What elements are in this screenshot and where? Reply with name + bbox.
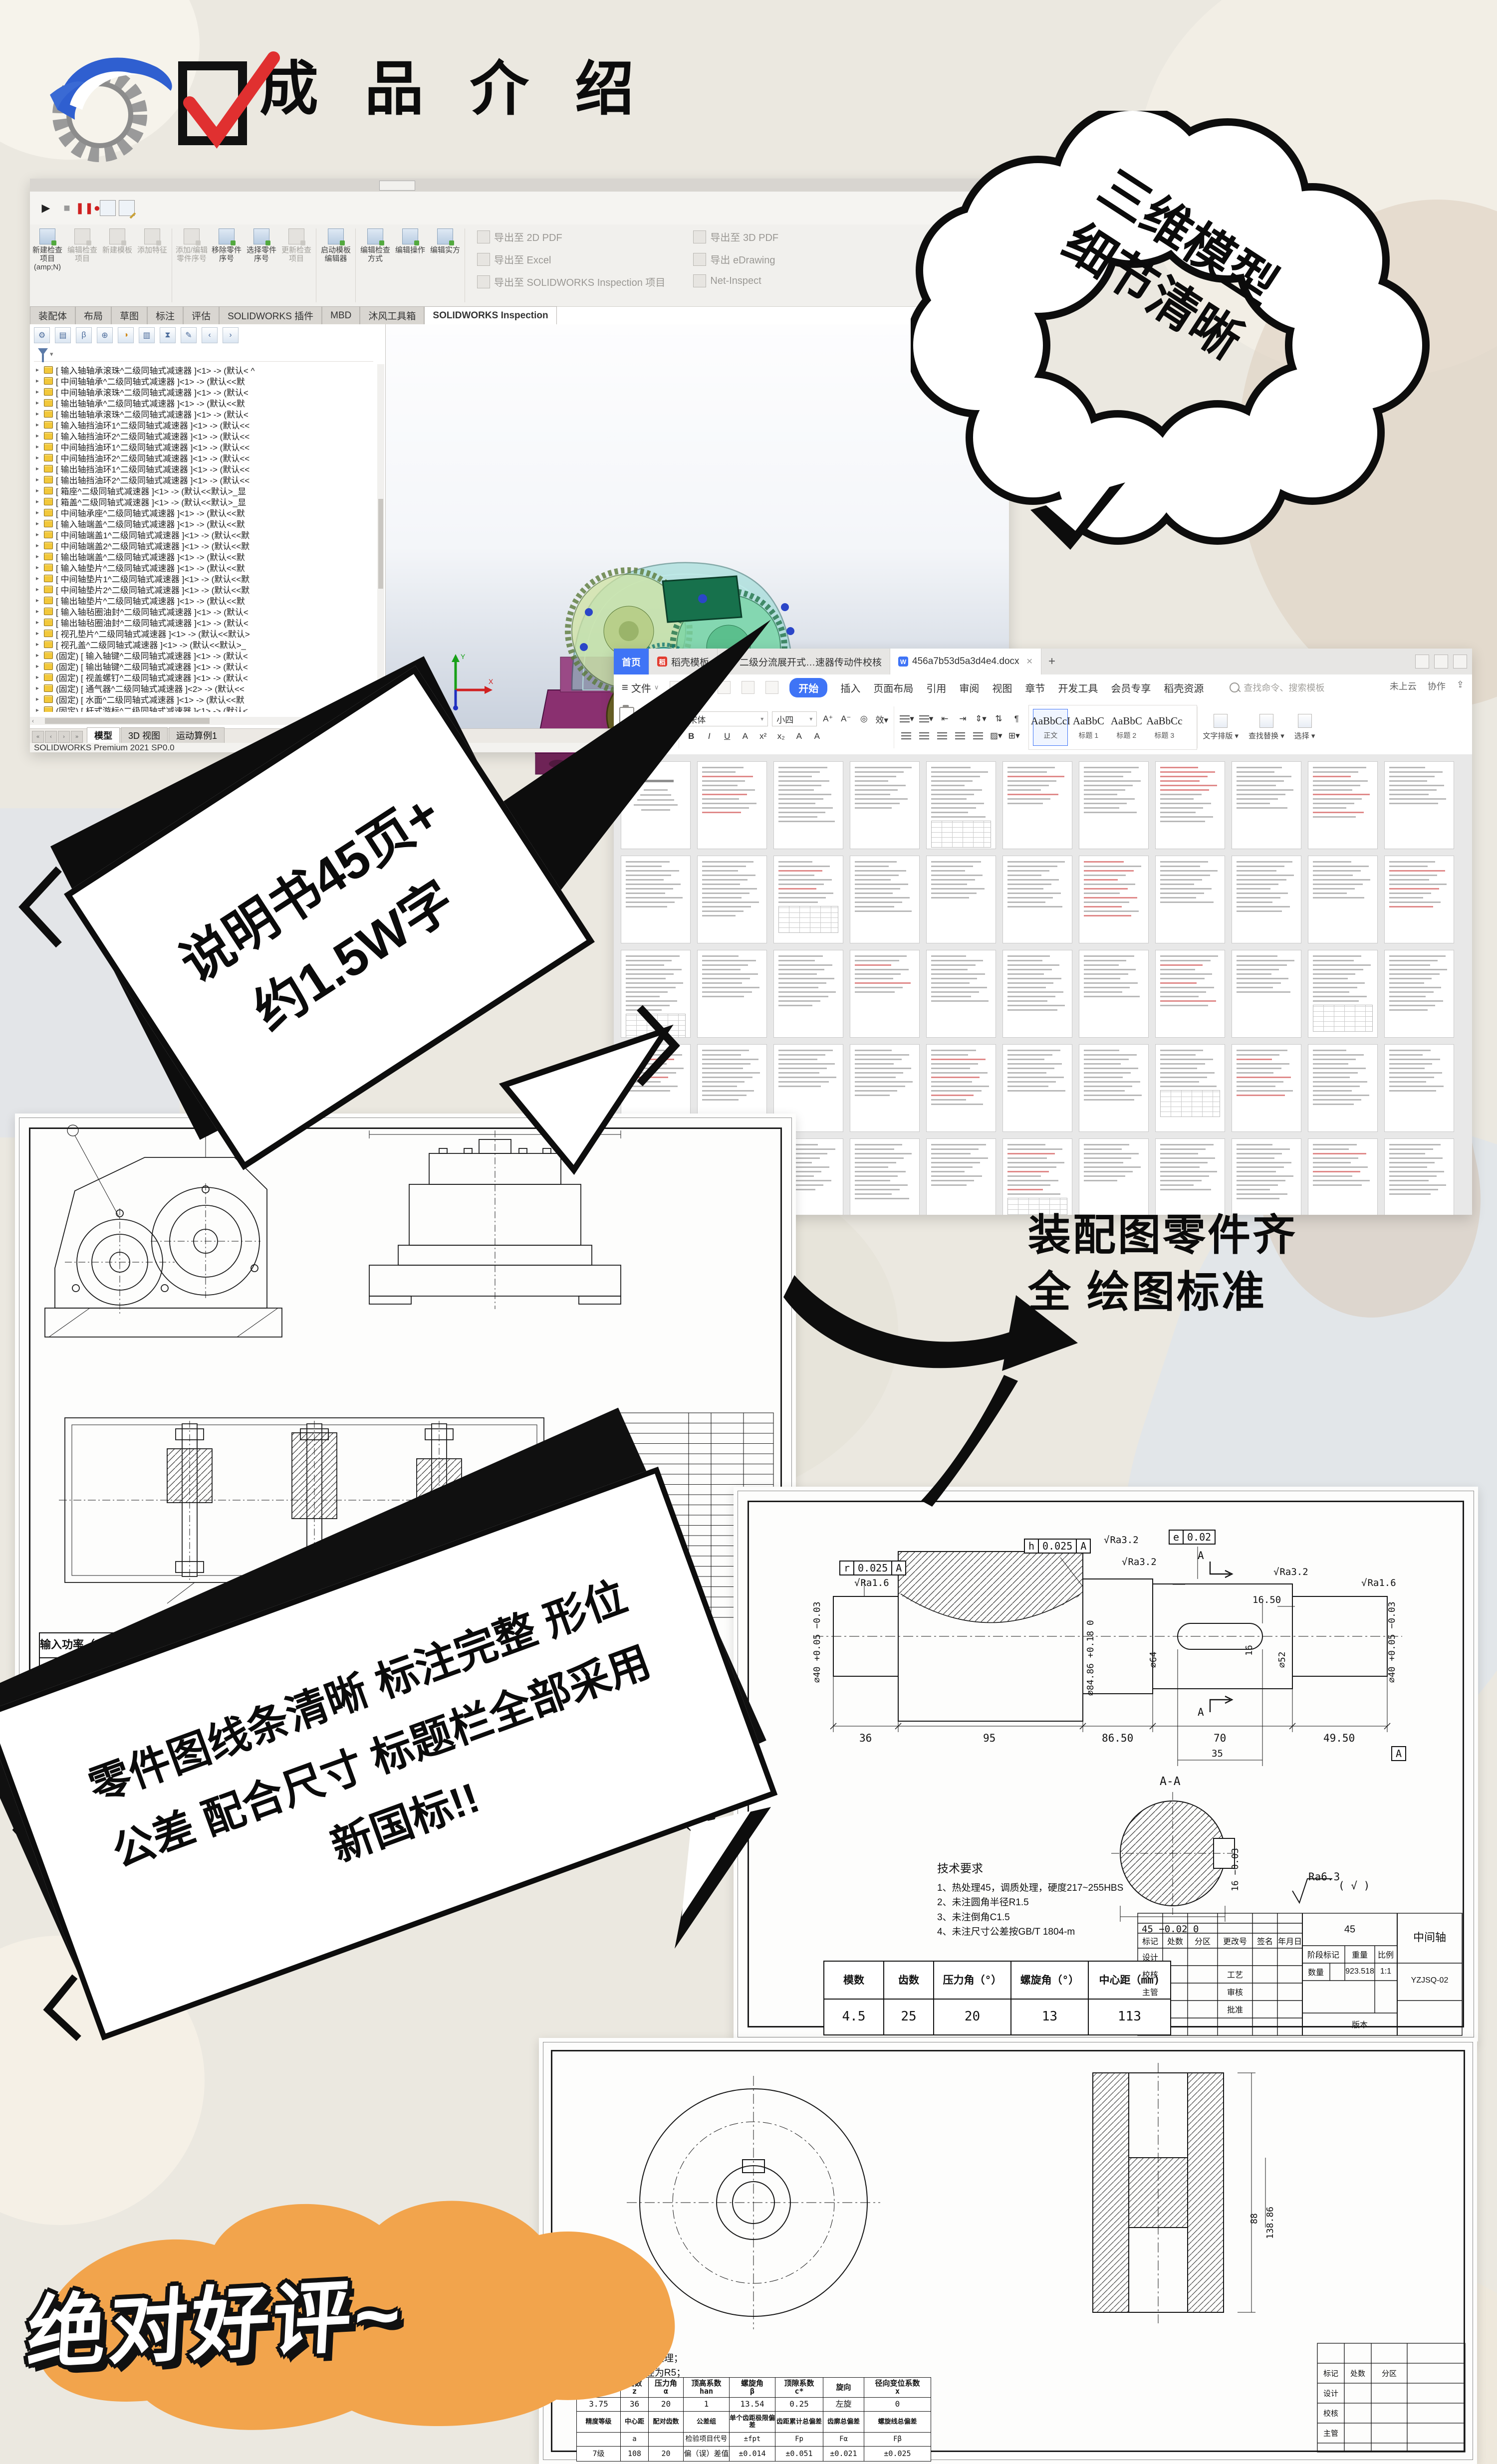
sw-tree-item-30[interactable]: ▸(固定) [ 水面^二级同轴式减速器 ]<1> -> (默认<<默 bbox=[30, 693, 374, 704]
sw-ribbon-button-3[interactable]: 添加特征 bbox=[135, 224, 170, 306]
print-icon[interactable] bbox=[718, 681, 731, 694]
wps-tool-0[interactable]: 文字排版 ▾ bbox=[1198, 714, 1244, 741]
wps-new-tab-button[interactable]: + bbox=[1041, 649, 1062, 674]
tree-expand-icon[interactable]: ▸ bbox=[36, 509, 41, 516]
tree-expand-icon[interactable]: ▸ bbox=[36, 498, 41, 505]
sw-tab-5[interactable]: SOLIDWORKS 插件 bbox=[219, 306, 322, 324]
format-button-5[interactable]: x₂ bbox=[774, 729, 788, 743]
tree-expand-icon[interactable]: ▸ bbox=[36, 663, 41, 670]
wps-page-thumbnail-55[interactable] bbox=[1384, 1138, 1454, 1215]
wps-page-thumbnail-11[interactable] bbox=[1384, 761, 1454, 849]
wps-page-thumbnail-7[interactable] bbox=[1079, 761, 1149, 849]
page-line bbox=[778, 785, 821, 786]
record-icon[interactable]: ❚❚● bbox=[79, 199, 97, 217]
sw-bottom-tab-2[interactable]: 运动算例1 bbox=[169, 727, 225, 743]
sw-tree-item-5[interactable]: ▸[ 输入轴挡油环1^二级同轴式减速器 ]<1> -> (默认<< bbox=[30, 419, 374, 430]
copy-button[interactable]: ⧉ 复制 bbox=[640, 722, 674, 733]
sort-button[interactable]: ⇅ bbox=[992, 712, 1005, 726]
sw-ribbon-button-5[interactable]: 移除零件序号 bbox=[209, 224, 244, 306]
format-button-6[interactable]: A bbox=[792, 729, 806, 743]
part-icon bbox=[44, 487, 53, 494]
page-line bbox=[778, 1063, 835, 1065]
play-icon[interactable]: ▶ bbox=[37, 199, 55, 217]
stop-icon[interactable]: ■ bbox=[58, 199, 76, 217]
sw-export-button-3[interactable]: 导出至 3D PDF bbox=[693, 229, 778, 244]
page-line bbox=[1084, 1171, 1133, 1172]
sw-tree-tab-icons: ⚙ ▤ β ⊕ ◑ ▥ ⧗ ✎ ‹ › bbox=[34, 327, 239, 343]
wps-page-thumbnail-12[interactable] bbox=[621, 856, 691, 943]
wps-page-thumbnail-43[interactable] bbox=[1308, 1044, 1378, 1132]
border-button[interactable]: ⊞▾ bbox=[1007, 729, 1021, 743]
page-line bbox=[855, 1148, 894, 1150]
sw-tab-4[interactable]: 评估 bbox=[183, 306, 219, 324]
wps-page-thumbnail-33[interactable] bbox=[1384, 950, 1454, 1038]
edit-macro-icon[interactable] bbox=[119, 200, 135, 216]
sw-tree-item-11[interactable]: ▸[ 箱座^二级同轴式减速器 ]<1> -> (默认<<默认>_显 bbox=[30, 485, 374, 496]
tree-expand-icon[interactable]: ▸ bbox=[36, 531, 41, 538]
page-line bbox=[931, 1171, 965, 1172]
wps-window-tab-2[interactable]: P二级分流展开式…速器传动件校核 bbox=[718, 649, 890, 674]
page-line bbox=[1160, 794, 1202, 795]
wps-page-thumbnail-40[interactable] bbox=[1079, 1044, 1149, 1132]
wps-menu-9[interactable]: 稻壳资源 bbox=[1164, 680, 1204, 695]
sw-tree-item-14[interactable]: ▸[ 输入轴端盖^二级同轴式减速器 ]<1> -> (默认<<默 bbox=[30, 518, 374, 529]
sw-tree-item-6[interactable]: ▸[ 输入轴挡油环2^二级同轴式减速器 ]<1> -> (默认<< bbox=[30, 430, 374, 441]
wps-page-thumbnail-1[interactable] bbox=[621, 761, 691, 849]
wps-style-chip-2[interactable]: AaBbC标题 2 bbox=[1109, 709, 1144, 746]
page-line bbox=[1160, 1068, 1197, 1069]
cloud-status[interactable]: 未上云 bbox=[1390, 679, 1417, 692]
show-marks-button[interactable]: ¶ bbox=[1009, 712, 1023, 726]
page-line bbox=[1007, 1153, 1055, 1154]
sw-tree-item-19[interactable]: ▸[ 中间轴垫片1^二级同轴式减速器 ]<1> -> (默认<<默 bbox=[30, 573, 374, 584]
sw-ribbon-button-label: 编辑检查项目 bbox=[65, 246, 100, 263]
featuremanager-icon[interactable]: ⚙ bbox=[34, 327, 50, 343]
sw-tree-item-0[interactable]: ▸[ 输入轴轴承滚珠^二级同轴式减速器 ]<1> -> (默认< ^ bbox=[30, 364, 374, 375]
sw-tree-item-26[interactable]: ▸(固定) [ 输入轴键^二级同轴式减速器 ]<1> -> (默认< bbox=[30, 650, 374, 661]
page-line bbox=[855, 1144, 902, 1145]
tree-expand-icon[interactable]: ▸ bbox=[36, 630, 41, 637]
tree-expand-icon[interactable]: ▸ bbox=[36, 597, 41, 604]
sw-tree-item-28[interactable]: ▸(固定) [ 视盖螺钉^二级同轴式减速器 ]<1> -> (默认< bbox=[30, 672, 374, 682]
wps-page-thumbnail-5[interactable] bbox=[926, 761, 996, 849]
wps-tool-2[interactable]: 选择 ▾ bbox=[1289, 714, 1320, 741]
wps-window-tab-1[interactable]: 稻稻壳模板 bbox=[649, 649, 718, 674]
tree-expand-icon[interactable]: ▸ bbox=[36, 608, 41, 615]
tree-expand-icon[interactable]: ▸ bbox=[36, 586, 41, 593]
format-button-2[interactable]: U bbox=[720, 729, 734, 743]
page-line bbox=[1237, 798, 1278, 800]
wps-style-chip-0[interactable]: AaBbCcI正文 bbox=[1033, 709, 1068, 746]
wps-menu-7[interactable]: 开发工具 bbox=[1058, 680, 1098, 695]
sw-tab-0[interactable]: 装配体 bbox=[30, 306, 75, 324]
sw-ribbon-button-0[interactable]: 新建检查项目 (amp;N) bbox=[30, 224, 65, 306]
page-line bbox=[1237, 1144, 1272, 1145]
page-line bbox=[855, 789, 898, 791]
page-line bbox=[626, 1068, 684, 1069]
sw-tree-item-18[interactable]: ▸[ 输入轴垫片^二级同轴式减速器 ]<1> -> (默认<<默 bbox=[30, 562, 374, 573]
sw-tree-item-24[interactable]: ▸[ 视孔垫片^二级同轴式减速器 ]<1> -> (默认<<默认> bbox=[30, 628, 374, 639]
collab-button[interactable]: 协作 bbox=[1428, 679, 1446, 692]
tools-icon[interactable]: ✎ bbox=[181, 327, 197, 343]
sw-tab-6[interactable]: MBD bbox=[322, 306, 360, 324]
sw-tab-8[interactable]: SOLIDWORKS Inspection bbox=[424, 306, 556, 324]
distribute-button[interactable] bbox=[971, 729, 985, 743]
page-line bbox=[1389, 1144, 1441, 1145]
sw-tab-3[interactable]: 标注 bbox=[147, 306, 183, 324]
part-icon bbox=[44, 498, 53, 505]
sw-export-button-4[interactable]: 导出 eDrawing bbox=[693, 252, 778, 266]
sw-tree-item-2[interactable]: ▸[ 中间轴轴承滚珠^二级同轴式减速器 ]<1> -> (默认< bbox=[30, 386, 374, 397]
text-effect-button[interactable]: 效▾ bbox=[875, 712, 889, 726]
new-macro-icon[interactable] bbox=[100, 200, 116, 216]
sw-export-button-2[interactable]: 导出至 SOLIDWORKS Inspection 项目 bbox=[477, 274, 665, 289]
tree-expand-icon[interactable]: ▸ bbox=[36, 575, 41, 582]
page-line bbox=[1160, 776, 1208, 777]
wps-window-controls[interactable] bbox=[1415, 655, 1467, 669]
page-line bbox=[855, 1171, 906, 1172]
wps-page-thumbnail-54[interactable] bbox=[1308, 1138, 1378, 1215]
sw-tree-filter[interactable]: ▾ bbox=[34, 346, 373, 362]
shading-button[interactable]: ▨▾ bbox=[989, 729, 1003, 743]
display-icon[interactable]: ◑ bbox=[118, 327, 134, 343]
page-line bbox=[1237, 1068, 1281, 1069]
style-sample: AaBbCc bbox=[1146, 715, 1182, 727]
scroll-right-icon[interactable]: › bbox=[223, 327, 239, 343]
wps-page-thumbnail-44[interactable] bbox=[1384, 1044, 1454, 1132]
page-line bbox=[702, 897, 742, 898]
tree-expand-icon[interactable]: ▸ bbox=[36, 684, 41, 691]
wps-menu-8[interactable]: 会员专享 bbox=[1111, 680, 1151, 695]
sw-ribbon-button-11[interactable]: 编辑实方 bbox=[428, 224, 463, 306]
sw-tree-item-16[interactable]: ▸[ 中间轴端盖2^二级同轴式减速器 ]<1> -> (默认<<默 bbox=[30, 540, 374, 551]
wps-window-tab-3[interactable]: W456a7b53d5a3d4e4.docx✕ bbox=[890, 649, 1041, 674]
export-icon[interactable] bbox=[694, 681, 707, 694]
tree-expand-icon[interactable]: ▸ bbox=[36, 454, 41, 461]
gear-cell-2-6: 齿廓总偏差 bbox=[823, 2412, 864, 2433]
sw-export-button-5[interactable]: Net-Inspect bbox=[693, 274, 778, 287]
page-line bbox=[1084, 910, 1139, 912]
wps-page-thumbnail-28[interactable] bbox=[1002, 950, 1072, 1038]
wps-page-thumbnail-26[interactable] bbox=[850, 950, 920, 1038]
page-line bbox=[626, 906, 667, 907]
shaft-tech-line-3: 3、未注倒角C1.5 bbox=[937, 1910, 1123, 1925]
wps-page-thumbnail-41[interactable] bbox=[1155, 1044, 1225, 1132]
sw-ribbon-button-8[interactable]: 启动模板编辑器 bbox=[318, 224, 353, 306]
wps-menu-0[interactable]: 开始 bbox=[789, 678, 827, 697]
page-line bbox=[626, 978, 666, 979]
sw-ribbon-button-10[interactable]: 编辑操作 bbox=[393, 224, 428, 306]
wps-page-thumbnail-18[interactable] bbox=[1079, 856, 1149, 943]
line-spacing-button[interactable]: ⇕▾ bbox=[974, 712, 988, 726]
wps-style-chip-3[interactable]: AaBbCc标题 3 bbox=[1147, 709, 1182, 746]
sw-bottom-tab-1[interactable]: 3D 视图 bbox=[121, 727, 168, 743]
wps-page-thumbnail-42[interactable] bbox=[1232, 1044, 1301, 1132]
wps-menu-4[interactable]: 审阅 bbox=[959, 680, 979, 695]
wps-tab-icon: P bbox=[726, 657, 736, 667]
tree-expand-icon[interactable]: ▸ bbox=[36, 520, 41, 527]
wps-page-thumbnail-17[interactable] bbox=[1002, 856, 1072, 943]
wps-page-thumbnail-16[interactable] bbox=[926, 856, 996, 943]
page-line bbox=[855, 1050, 892, 1051]
wps-page-thumbnail-50[interactable] bbox=[1002, 1138, 1072, 1215]
wps-search[interactable]: 查找命令、搜索模板 bbox=[1230, 681, 1324, 694]
sw-tree-vscrollbar[interactable] bbox=[377, 364, 384, 712]
part-icon bbox=[44, 509, 53, 516]
tree-expand-icon[interactable]: ▸ bbox=[36, 476, 41, 483]
page-line bbox=[702, 991, 752, 993]
sw-tree-item-13[interactable]: ▸[ 中间轴承座^二级同轴式减速器 ]<1> -> (默认<<默 bbox=[30, 507, 374, 518]
tree-expand-icon[interactable]: ▸ bbox=[36, 652, 41, 659]
page-line bbox=[1084, 1054, 1137, 1056]
page-line bbox=[931, 1157, 988, 1159]
page-line bbox=[778, 767, 827, 768]
format-painter-button[interactable]: 🖌 格式刷 bbox=[640, 735, 674, 745]
page-line bbox=[1007, 1090, 1065, 1092]
sw-tree-item-12[interactable]: ▸[ 箱盖^二级同轴式减速器 ]<1> -> (默认<<默认>_显 bbox=[30, 496, 374, 507]
wps-menu-1[interactable]: 插入 bbox=[840, 680, 860, 695]
wps-page-thumbnail-32[interactable] bbox=[1308, 950, 1378, 1038]
sw-bottom-tab-0[interactable]: 模型 bbox=[87, 727, 120, 743]
align-left-button[interactable] bbox=[899, 729, 913, 743]
number-list-button[interactable]: ▾ bbox=[919, 712, 934, 726]
wps-style-chip-1[interactable]: AaBbC标题 1 bbox=[1071, 709, 1106, 746]
part-icon bbox=[44, 377, 53, 385]
page-line bbox=[1389, 1175, 1437, 1177]
sw-tree-item-15[interactable]: ▸[ 中间轴端盖1^二级同轴式减速器 ]<1> -> (默认<<默 bbox=[30, 529, 374, 540]
tree-expand-icon[interactable]: ▸ bbox=[36, 695, 41, 702]
page-line bbox=[641, 809, 671, 811]
wps-page-thumbnail-20[interactable] bbox=[1232, 856, 1301, 943]
wps-page-thumbnail-37[interactable] bbox=[850, 1044, 920, 1132]
wps-page-thumbnail-52[interactable] bbox=[1155, 1138, 1225, 1215]
wps-page-thumbnail-6[interactable] bbox=[1002, 761, 1072, 849]
wps-page-thumbnail-48[interactable] bbox=[850, 1138, 920, 1215]
tree-expand-icon[interactable]: ▸ bbox=[36, 388, 41, 395]
sw-ribbon-button-label: 新建检查项目 (amp;N) bbox=[30, 246, 65, 271]
tree-expand-icon[interactable]: ▸ bbox=[36, 619, 41, 626]
part-icon bbox=[44, 476, 53, 483]
font-name-select[interactable]: 宋体▾ bbox=[684, 711, 768, 726]
page-line bbox=[1237, 1072, 1273, 1074]
wps-menu-2[interactable]: 页面布局 bbox=[873, 680, 913, 695]
page-line bbox=[855, 1184, 908, 1186]
sw-ribbon-button-7[interactable]: 更新检查项目 bbox=[279, 224, 314, 306]
wps-page-thumbnail-14[interactable] bbox=[773, 856, 843, 943]
sw-tree-item-20[interactable]: ▸[ 中间轴垫片2^二级同轴式减速器 ]<1> -> (默认<<默 bbox=[30, 584, 374, 595]
wps-page-thumbnail-53[interactable] bbox=[1232, 1138, 1301, 1215]
wps-page-thumbnail-13[interactable] bbox=[697, 856, 767, 943]
justify-button[interactable] bbox=[953, 729, 967, 743]
align-right-button[interactable] bbox=[935, 729, 949, 743]
wps-page-thumbnail-10[interactable] bbox=[1308, 761, 1378, 849]
sw-tree-item-21[interactable]: ▸[ 输出轴垫片^二级同轴式减速器 ]<1> -> (默认<<默 bbox=[30, 595, 374, 606]
sw-tree-item-25[interactable]: ▸[ 视孔盖^二级同轴式减速器 ]<1> -> (默认<<默认>_ bbox=[30, 639, 374, 650]
page-line bbox=[931, 780, 973, 782]
history-icon[interactable]: ⧗ bbox=[160, 327, 176, 343]
wps-menu-5[interactable]: 视图 bbox=[992, 680, 1012, 695]
tree-expand-icon[interactable]: ▸ bbox=[36, 443, 41, 450]
style-sample: AaBbCcI bbox=[1031, 715, 1070, 727]
page-line bbox=[1237, 1166, 1284, 1168]
sw-top-scrollbar[interactable] bbox=[30, 179, 1009, 192]
tree-expand-icon[interactable]: ▸ bbox=[36, 377, 41, 384]
sw-tab-2[interactable]: 草图 bbox=[111, 306, 147, 324]
wps-page-thumbnail-49[interactable] bbox=[926, 1138, 996, 1215]
pane-icon[interactable]: ▥ bbox=[139, 327, 155, 343]
wps-page-thumbnail-39[interactable] bbox=[1002, 1044, 1072, 1132]
wps-page-thumbnail-27[interactable] bbox=[926, 950, 996, 1038]
page-line bbox=[1389, 1162, 1435, 1163]
tree-expand-icon[interactable]: ▸ bbox=[36, 542, 41, 549]
tree-expand-icon[interactable]: ▸ bbox=[36, 564, 41, 571]
sw-ribbon-button-6[interactable]: 选择零件序号 bbox=[244, 224, 279, 306]
configuration-icon[interactable]: β bbox=[76, 327, 92, 343]
sw-ribbon-button-4[interactable]: 添加/编辑零件序号 bbox=[174, 224, 209, 306]
page-line bbox=[702, 780, 745, 782]
len-dim: 95 bbox=[983, 1732, 996, 1744]
sw-export-button-1[interactable]: 导出至 Excel bbox=[477, 252, 665, 266]
page-table bbox=[1313, 1005, 1373, 1032]
sw-tab-7[interactable]: 沐风工具箱 bbox=[360, 306, 424, 324]
clear-format-button[interactable]: ◎ bbox=[857, 712, 871, 726]
shaft-tb-label-18: 1:1 bbox=[1380, 1967, 1391, 1976]
sw-tree-item-17[interactable]: ▸[ 输出轴端盖^二级同轴式减速器 ]<1> -> (默认<<默 bbox=[30, 551, 374, 562]
format-button-4[interactable]: x² bbox=[756, 729, 770, 743]
outdent-button[interactable]: ⇤ bbox=[938, 712, 952, 726]
wps-window-tab-0[interactable]: 首页 bbox=[614, 649, 649, 674]
format-button-7[interactable]: A bbox=[810, 729, 824, 743]
page-line bbox=[702, 785, 738, 786]
tree-expand-icon[interactable]: ▸ bbox=[36, 641, 41, 648]
sw-ribbon-button-2[interactable]: 新建模板 bbox=[100, 224, 135, 306]
sw-tab-nav-buttons[interactable]: «‹›» bbox=[32, 731, 83, 743]
sw-tree-item-7[interactable]: ▸[ 中间轴挡油环1^二级同轴式减速器 ]<1> -> (默认<< bbox=[30, 441, 374, 452]
redo-icon[interactable] bbox=[765, 681, 778, 694]
wps-page-thumbnail-9[interactable] bbox=[1232, 761, 1301, 849]
page-line bbox=[1007, 776, 1064, 777]
page-line bbox=[931, 960, 983, 961]
sw-tab-1[interactable]: 布局 bbox=[75, 306, 111, 324]
wps-page-thumbnail-24[interactable] bbox=[697, 950, 767, 1038]
grow-font-button[interactable]: A⁺ bbox=[821, 712, 835, 726]
tree-expand-icon[interactable]: ▸ bbox=[36, 432, 41, 439]
wps-page-thumbnail-21[interactable] bbox=[1308, 856, 1378, 943]
page-line bbox=[1389, 776, 1435, 777]
wps-page-thumbnail-25[interactable] bbox=[773, 950, 843, 1038]
page-line bbox=[626, 1009, 662, 1011]
indent-button[interactable]: ⇥ bbox=[956, 712, 970, 726]
cut-button[interactable]: ✂ 剪切 bbox=[640, 710, 674, 720]
page-line bbox=[1237, 780, 1284, 782]
sw-tree-item-9[interactable]: ▸[ 输出轴挡油环1^二级同轴式减速器 ]<1> -> (默认<< bbox=[30, 463, 374, 474]
page-line bbox=[1237, 960, 1294, 961]
tree-expand-icon[interactable]: ▸ bbox=[36, 421, 41, 428]
wps-page-thumbnail-23[interactable] bbox=[621, 950, 691, 1038]
tree-expand-icon[interactable]: ▸ bbox=[36, 465, 41, 472]
tree-expand-icon[interactable]: ▸ bbox=[36, 366, 41, 373]
save-icon[interactable] bbox=[670, 681, 683, 694]
tree-expand-icon[interactable]: ▸ bbox=[36, 487, 41, 494]
sw-tree-item-23[interactable]: ▸[ 输出轴毡圈油封^二级同轴式减速器 ]<1> -> (默认< bbox=[30, 617, 374, 628]
shaft-tb-label-15: 比例 bbox=[1378, 1948, 1394, 1960]
wps-page-thumbnail-4[interactable] bbox=[850, 761, 920, 849]
gear-dim: 88 bbox=[1249, 2213, 1259, 2224]
paste-button[interactable]: 粘贴▾ bbox=[619, 707, 635, 748]
wps-tool-1[interactable]: 查找替换 ▾ bbox=[1244, 714, 1289, 741]
format-button-3[interactable]: A bbox=[738, 729, 752, 743]
sw-tree-item-27[interactable]: ▸(固定) [ 输出轴键^二级同轴式减速器 ]<1> -> (默认< bbox=[30, 661, 374, 672]
wps-page-thumbnail-8[interactable] bbox=[1155, 761, 1225, 849]
share-icon[interactable]: ⇪ bbox=[1457, 679, 1464, 692]
sw-tree-item-10[interactable]: ▸[ 输出轴挡油环2^二级同轴式减速器 ]<1> -> (默认<< bbox=[30, 474, 374, 485]
page-line bbox=[1313, 1099, 1361, 1101]
wps-page-thumbnail-51[interactable] bbox=[1079, 1138, 1149, 1215]
tree-expand-icon[interactable]: ▸ bbox=[36, 553, 41, 560]
tree-expand-icon[interactable]: ▸ bbox=[36, 706, 41, 712]
wps-menu-6[interactable]: 章节 bbox=[1025, 680, 1045, 695]
page-line bbox=[1160, 1144, 1214, 1145]
wps-page-thumbnail-2[interactable] bbox=[697, 761, 767, 849]
wps-page-thumbnail-31[interactable] bbox=[1232, 950, 1301, 1038]
scroll-left-icon[interactable]: ‹ bbox=[202, 327, 218, 343]
sw-tree-item-8[interactable]: ▸[ 中间轴挡油环2^二级同轴式减速器 ]<1> -> (默认<< bbox=[30, 452, 374, 463]
dimxpert-icon[interactable]: ⊕ bbox=[97, 327, 113, 343]
wps-menu-3[interactable]: 引用 bbox=[926, 680, 946, 695]
wps-page-thumbnail-19[interactable] bbox=[1155, 856, 1225, 943]
propertymanager-icon[interactable]: ▤ bbox=[55, 327, 71, 343]
tree-expand-icon[interactable]: ▸ bbox=[36, 399, 41, 406]
font-size-select[interactable]: 小四▾ bbox=[772, 711, 817, 726]
page-line bbox=[1160, 955, 1218, 957]
undo-icon[interactable] bbox=[742, 681, 754, 694]
tree-expand-icon[interactable]: ▸ bbox=[36, 673, 41, 680]
sw-tree-item-4[interactable]: ▸[ 输出轴轴承滚珠^二级同轴式减速器 ]<1> -> (默认< bbox=[30, 408, 374, 419]
wps-page-thumbnail-30[interactable] bbox=[1155, 950, 1225, 1038]
align-center-button[interactable] bbox=[917, 729, 931, 743]
page-line bbox=[1084, 1157, 1131, 1159]
shrink-font-button[interactable]: A⁻ bbox=[839, 712, 853, 726]
sw-ribbon-button-1[interactable]: 编辑检查项目 bbox=[65, 224, 100, 306]
page-line bbox=[1313, 798, 1362, 800]
sw-export-button-0[interactable]: 导出至 2D PDF bbox=[477, 229, 665, 244]
sw-tree-item-3[interactable]: ▸[ 输出轴轴承^二级同轴式减速器 ]<1> -> (默认<<默 bbox=[30, 397, 374, 408]
wps-file-menu[interactable]: ≡文件∨ bbox=[622, 680, 659, 695]
close-tab-icon[interactable]: ✕ bbox=[1026, 657, 1033, 667]
sw-ribbon-button-9[interactable]: 编辑检查方式 bbox=[358, 224, 393, 306]
wps-page-thumbnail-3[interactable] bbox=[773, 761, 843, 849]
wps-page-thumbnail-22[interactable] bbox=[1384, 856, 1454, 943]
format-button-1[interactable]: I bbox=[702, 729, 716, 743]
sw-tree-item-29[interactable]: ▸(固定) [ 通气器^二级同轴式减速器 ]<2> -> (默认<< bbox=[30, 682, 374, 693]
wps-page-thumbnail-29[interactable] bbox=[1079, 950, 1149, 1038]
gear-cell-3-7: Fβ bbox=[864, 2433, 931, 2447]
shaft-param-table: 模数齿数压力角（°）螺旋角（°）中心距（mm)4.5252013113 bbox=[823, 1961, 1171, 2035]
page-line bbox=[931, 767, 971, 768]
page-line bbox=[1084, 875, 1126, 876]
tree-expand-icon[interactable]: ▸ bbox=[36, 410, 41, 417]
bullet-list-button[interactable]: ▾ bbox=[899, 712, 915, 726]
page-line bbox=[1084, 1162, 1123, 1163]
export-icon bbox=[477, 230, 490, 243]
sw-tree-item-22[interactable]: ▸[ 输入轴毡圈油封^二级同轴式减速器 ]<1> -> (默认< bbox=[30, 606, 374, 617]
format-button-0[interactable]: B bbox=[684, 729, 698, 743]
page-line bbox=[1084, 960, 1126, 961]
dia-dim: ⌀84.86 +0.18 0 bbox=[1085, 1620, 1096, 1696]
wps-page-thumbnail-15[interactable] bbox=[850, 856, 920, 943]
sw-tree-item-1[interactable]: ▸[ 中间轴轴承^二级同轴式减速器 ]<1> -> (默认<<默 bbox=[30, 375, 374, 386]
wps-page-thumbnail-38[interactable] bbox=[926, 1044, 996, 1132]
